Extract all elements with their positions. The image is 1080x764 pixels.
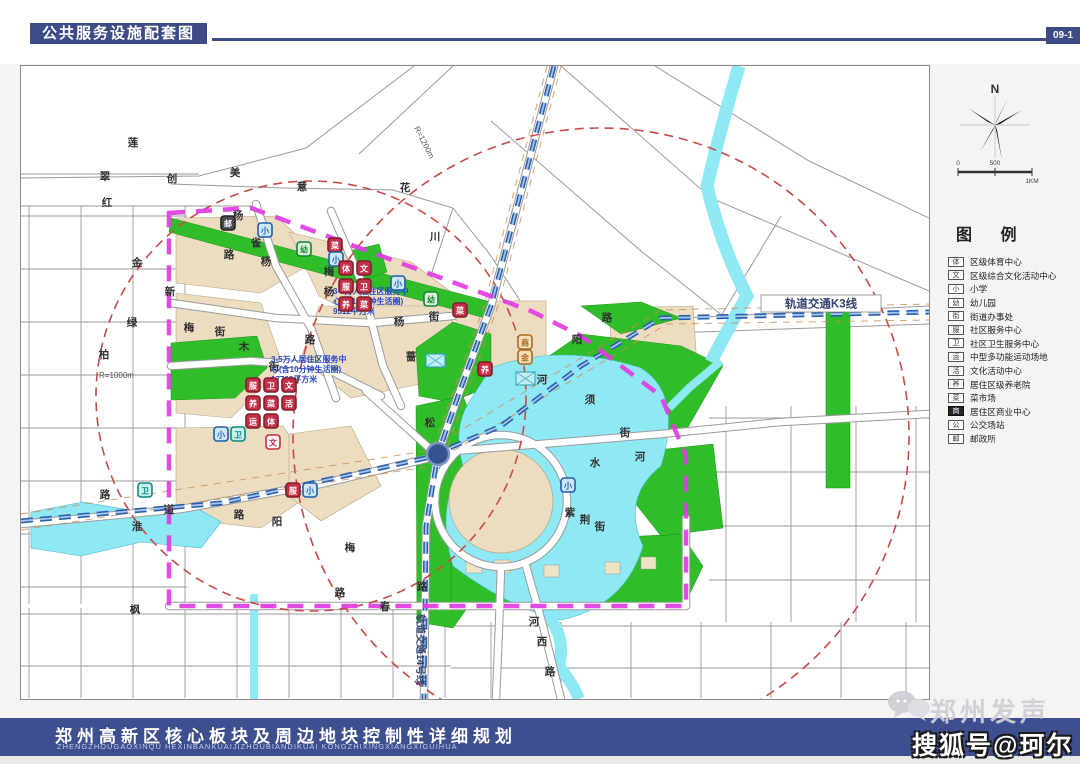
svg-text:邮: 邮 bbox=[224, 219, 232, 229]
svg-text:小: 小 bbox=[393, 279, 402, 289]
svg-text:路: 路 bbox=[545, 665, 556, 678]
legend-item-label: 文化活动中心 bbox=[970, 364, 1022, 376]
svg-text:红: 红 bbox=[102, 196, 113, 209]
svg-text:菜: 菜 bbox=[330, 241, 339, 251]
legend-item-label: 社区服务中心 bbox=[970, 324, 1022, 336]
svg-text:街: 街 bbox=[428, 310, 440, 323]
legend-item-icon: 文 bbox=[948, 270, 964, 280]
legend-item-icon: 公 bbox=[948, 420, 964, 430]
svg-text:轨道交通K3线: 轨道交通K3线 bbox=[785, 297, 858, 311]
svg-text:R=1200m: R=1200m bbox=[412, 125, 436, 160]
svg-text:木: 木 bbox=[238, 340, 250, 353]
svg-text:街: 街 bbox=[594, 520, 606, 533]
svg-text:阳: 阳 bbox=[572, 334, 583, 346]
svg-text:路: 路 bbox=[305, 333, 316, 346]
legend-item-label: 菜市场 bbox=[970, 391, 996, 403]
legend-item: 卫社区卫生服务中心 bbox=[948, 337, 1078, 351]
legend-item-label: 中型多功能运动场地 bbox=[970, 351, 1048, 363]
svg-text:500: 500 bbox=[990, 160, 1001, 167]
legend-item-icon: 体 bbox=[948, 257, 964, 267]
legend-item: 菜菜市场 bbox=[948, 391, 1078, 405]
svg-text:菜: 菜 bbox=[359, 300, 368, 310]
svg-text:川: 川 bbox=[429, 231, 441, 243]
legend-item-icon: 服 bbox=[948, 325, 964, 335]
svg-text:服: 服 bbox=[289, 487, 298, 496]
svg-text:商: 商 bbox=[521, 338, 529, 348]
legend-item-icon: 卫 bbox=[948, 338, 964, 348]
metro-k3-label: 轨道交通K3线 bbox=[761, 295, 881, 312]
svg-text:道: 道 bbox=[164, 503, 175, 516]
svg-text:松: 松 bbox=[425, 416, 436, 429]
svg-text:路: 路 bbox=[417, 580, 428, 593]
svg-text:柏: 柏 bbox=[99, 348, 110, 361]
svg-text:路: 路 bbox=[224, 248, 235, 261]
legend-item-icon: 活 bbox=[948, 366, 964, 376]
svg-text:幼: 幼 bbox=[300, 245, 308, 255]
header-rule bbox=[212, 38, 1048, 41]
svg-text:文: 文 bbox=[269, 438, 278, 448]
svg-text:运: 运 bbox=[249, 418, 257, 427]
legend-item: 幼幼儿园 bbox=[948, 296, 1078, 310]
svg-text:路: 路 bbox=[100, 488, 111, 501]
map-canvas: 轨道交通K3线 轨道交通14号线 莲翠红创美意花川金新绿柏杨雀路杨梅杨梅街木街路… bbox=[21, 66, 929, 699]
svg-text:养: 养 bbox=[248, 399, 257, 409]
svg-text:梅: 梅 bbox=[345, 541, 356, 554]
legend-item-label: 街道办事处 bbox=[970, 310, 1013, 322]
legend-item-icon: 运 bbox=[948, 352, 964, 362]
svg-text:荆: 荆 bbox=[580, 513, 591, 526]
svg-text:体: 体 bbox=[267, 417, 276, 427]
legend-item-icon: 邮 bbox=[948, 434, 964, 444]
svg-text:河: 河 bbox=[635, 451, 646, 463]
svg-text:创: 创 bbox=[166, 172, 178, 185]
legend-item: 商居住区商业中心 bbox=[948, 405, 1078, 419]
svg-text:街: 街 bbox=[619, 426, 631, 439]
planning-map: 轨道交通K3线 轨道交通14号线 莲翠红创美意花川金新绿柏杨雀路杨梅杨梅街木街路… bbox=[20, 65, 930, 700]
svg-text:雀: 雀 bbox=[250, 236, 262, 249]
legend-item: 街街道办事处 bbox=[948, 309, 1078, 323]
legend-item-icon: 街 bbox=[948, 311, 964, 321]
svg-text:金: 金 bbox=[520, 353, 530, 363]
svg-text:蔷: 蔷 bbox=[406, 350, 417, 363]
svg-text:卫: 卫 bbox=[141, 487, 149, 496]
svg-text:养: 养 bbox=[341, 300, 350, 310]
page-header: 公共服务设施配套图 09-1 bbox=[0, 0, 1080, 64]
svg-text:1KM: 1KM bbox=[1025, 178, 1038, 185]
svg-text:金: 金 bbox=[131, 256, 143, 269]
svg-text:小: 小 bbox=[305, 486, 314, 496]
metro-14-label: 轨道交通14号线 bbox=[414, 614, 427, 685]
legend-item: 活文化活动中心 bbox=[948, 364, 1078, 378]
legend-list: 体区级体育中心文区级综合文化活动中心小小学幼幼儿园街街道办事处服社区服务中心卫社… bbox=[948, 255, 1078, 445]
legend-item-label: 幼儿园 bbox=[970, 296, 996, 308]
svg-text:体: 体 bbox=[342, 264, 351, 274]
svg-text:小: 小 bbox=[260, 226, 269, 236]
legend-item: 养居住区级养老院 bbox=[948, 377, 1078, 391]
svg-text:绿: 绿 bbox=[127, 316, 138, 329]
legend-item-label: 小学 bbox=[970, 283, 987, 295]
svg-text:须: 须 bbox=[585, 393, 596, 406]
svg-text:0: 0 bbox=[956, 160, 960, 167]
svg-text:路: 路 bbox=[234, 508, 245, 521]
svg-text:新: 新 bbox=[165, 285, 176, 298]
svg-text:花: 花 bbox=[400, 181, 411, 194]
legend-item: 公公交场站 bbox=[948, 418, 1078, 432]
legend-item-label: 邮政所 bbox=[970, 432, 996, 444]
svg-text:R=1000m: R=1000m bbox=[99, 371, 134, 380]
plan-title-pinyin: ZHENGZHOUGAOXINQU HEXINBANKUAIJIZHOUBIAN… bbox=[57, 742, 458, 751]
svg-text:梅: 梅 bbox=[324, 265, 335, 278]
svg-text:意: 意 bbox=[297, 180, 308, 193]
svg-text:杨: 杨 bbox=[261, 255, 272, 268]
legend-item-label: 居住区级养老院 bbox=[970, 378, 1030, 390]
legend-item-icon: 小 bbox=[948, 284, 964, 294]
legend-item-label: 居住区商业中心 bbox=[970, 405, 1030, 417]
watermark-brand: 郑州发声 bbox=[930, 692, 1050, 729]
legend-item: 服社区服务中心 bbox=[948, 323, 1078, 337]
svg-text:西: 西 bbox=[537, 636, 548, 648]
svg-text:小: 小 bbox=[563, 481, 572, 491]
legend-item: 小小学 bbox=[948, 282, 1078, 296]
legend-item-label: 公交场站 bbox=[970, 419, 1005, 431]
svg-text:莲: 莲 bbox=[128, 136, 139, 149]
svg-text:3-5万人居住区服务中: 3-5万人居住区服务中 bbox=[271, 354, 347, 364]
svg-text:服: 服 bbox=[342, 283, 351, 292]
svg-text:小: 小 bbox=[216, 430, 225, 440]
legend-item-label: 区级综合文化活动中心 bbox=[970, 269, 1056, 281]
svg-text:养: 养 bbox=[480, 365, 489, 375]
page-title: 公共服务设施配套图 bbox=[30, 23, 207, 44]
svg-text:活: 活 bbox=[285, 399, 293, 409]
svg-text:卫: 卫 bbox=[267, 382, 275, 391]
svg-text:美: 美 bbox=[230, 166, 241, 179]
chat-bubbles-icon bbox=[886, 688, 932, 724]
svg-text:紫: 紫 bbox=[565, 506, 576, 519]
svg-text:菜: 菜 bbox=[455, 306, 464, 316]
svg-text:路: 路 bbox=[602, 311, 613, 324]
legend-item-icon: 商 bbox=[948, 406, 964, 416]
svg-text:枫: 枫 bbox=[130, 603, 141, 616]
svg-text:阳: 阳 bbox=[272, 516, 283, 528]
svg-text:杨: 杨 bbox=[394, 315, 405, 328]
svg-text:卫: 卫 bbox=[234, 431, 242, 440]
legend-item: 文区级综合文化活动中心 bbox=[948, 269, 1078, 283]
svg-text:河: 河 bbox=[529, 616, 540, 628]
legend-item: 体区级体育中心 bbox=[948, 255, 1078, 269]
legend-item-label: 区级体育中心 bbox=[970, 256, 1022, 268]
svg-text:春: 春 bbox=[380, 600, 391, 613]
svg-text:文: 文 bbox=[360, 264, 369, 274]
page-code-badge: 09-1 bbox=[1046, 27, 1080, 44]
svg-text:心(含10分钟生活圈): 心(含10分钟生活圈) bbox=[271, 364, 342, 374]
legend-item-icon: 菜 bbox=[948, 393, 964, 403]
legend-item-icon: 养 bbox=[948, 379, 964, 389]
metro-station-marker bbox=[427, 443, 449, 465]
svg-text:路: 路 bbox=[335, 586, 346, 599]
svg-text:翠: 翠 bbox=[100, 171, 111, 183]
svg-text:梅: 梅 bbox=[184, 321, 195, 334]
legend-item: 运中型多功能运动场地 bbox=[948, 350, 1078, 364]
svg-text:文: 文 bbox=[285, 381, 294, 391]
svg-text:河: 河 bbox=[537, 374, 548, 386]
scale-bar bbox=[958, 168, 1032, 176]
svg-text:卫: 卫 bbox=[360, 283, 368, 292]
legend-title: 图 例 bbox=[956, 221, 1078, 245]
svg-text:菜: 菜 bbox=[266, 399, 275, 409]
watermark-account: 搜狐号@珂尔 bbox=[912, 726, 1073, 762]
svg-text:街: 街 bbox=[214, 325, 226, 338]
svg-text:N: N bbox=[991, 82, 1000, 96]
svg-text:淮: 淮 bbox=[132, 520, 143, 533]
legend-item-label: 社区卫生服务中心 bbox=[970, 337, 1039, 349]
legend-item-icon: 幼 bbox=[948, 298, 964, 308]
north-arrow: N 0 500 1KM bbox=[950, 80, 1040, 190]
svg-text:幼: 幼 bbox=[427, 295, 435, 305]
legend-item: 邮邮政所 bbox=[948, 432, 1078, 446]
map-sidebar: N 0 500 1KM 图 例 体区级体育中心文区级综合文化活动中心小小学幼幼儿… bbox=[938, 80, 1078, 640]
svg-text:水: 水 bbox=[589, 456, 601, 469]
svg-text:服: 服 bbox=[249, 382, 258, 391]
